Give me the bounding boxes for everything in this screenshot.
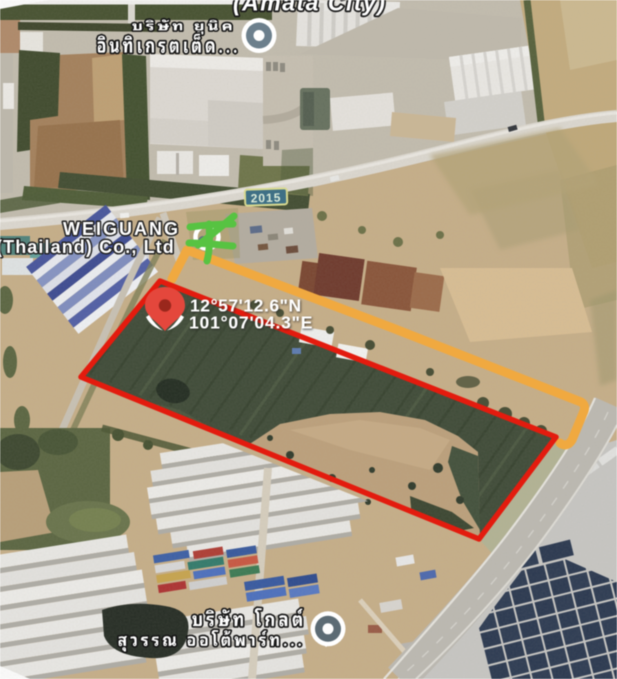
svg-text:101°07'04.3"E: 101°07'04.3"E [189, 313, 313, 333]
svg-text:(Amata City): (Amata City) [233, 0, 386, 16]
svg-text:WEIGUANG: WEIGUANG [63, 219, 180, 239]
svg-text:(Thailand) Co., Ltd: (Thailand) Co., Ltd [0, 237, 175, 257]
svg-text:2015: 2015 [250, 190, 281, 205]
